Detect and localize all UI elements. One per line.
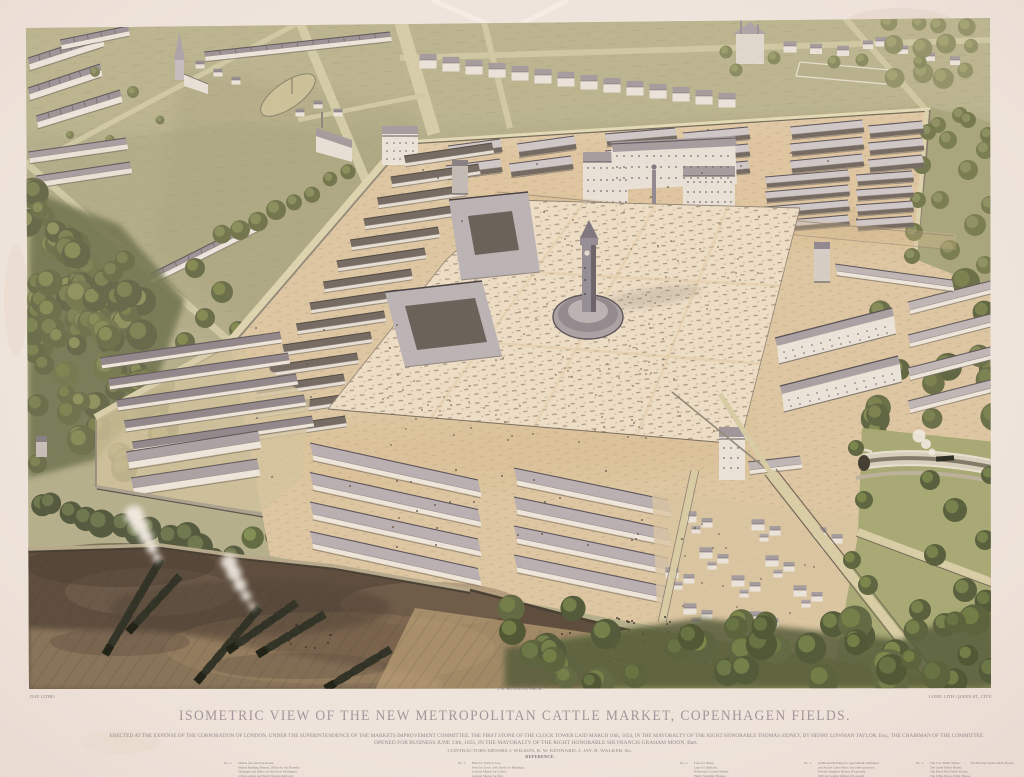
- svg-text:No. 1.: No. 1.: [804, 761, 812, 765]
- svg-text:No. 1.: No. 1.: [224, 761, 232, 765]
- svg-text:OPENED FOR BUSINESS JUNE 13th,: OPENED FOR BUSINESS JUNE 13th, 1855, IN …: [374, 741, 698, 746]
- svg-text:No. 1.: No. 1.: [680, 761, 688, 765]
- svg-text:No. 1.: No. 1.: [916, 761, 924, 765]
- svg-text:DAY. LITHO: DAY. LITHO: [30, 694, 55, 699]
- svg-text:REFERENCE.: REFERENCE.: [525, 754, 554, 759]
- svg-text:ERECTED AT THE EXPENSE OF THE: ERECTED AT THE EXPENSE OF THE CORPORATIO…: [110, 734, 985, 739]
- svg-text:No. 1.: No. 1.: [458, 761, 466, 765]
- svg-text:The Butchers Arms Public House: The Butchers Arms Public House.: [971, 761, 1015, 765]
- svg-text:ISOMETRIC VIEW OF THE NEW METR: ISOMETRIC VIEW OF THE NEW METROPOLITAN C…: [179, 708, 851, 724]
